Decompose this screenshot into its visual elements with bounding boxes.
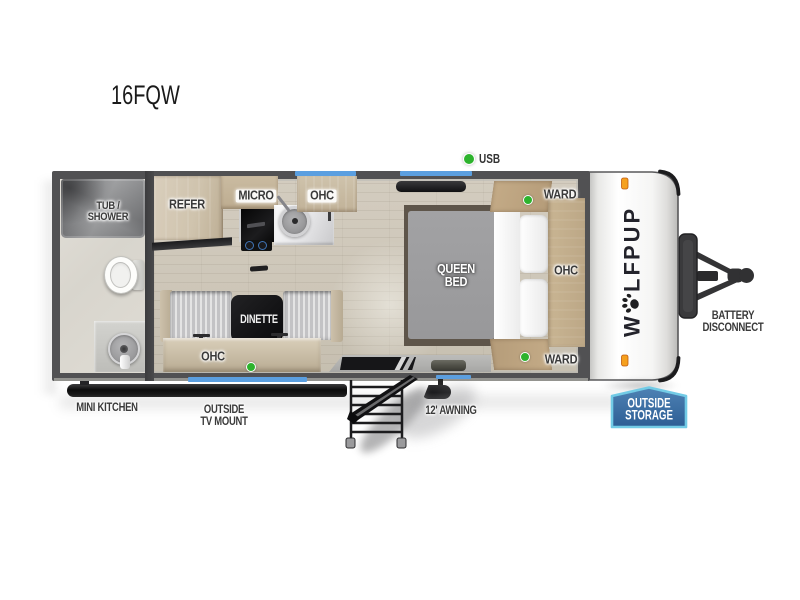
svg-text:PUP: PUP	[620, 206, 645, 260]
svg-text:STORAGE: STORAGE	[625, 408, 673, 423]
svg-text:LF: LF	[620, 259, 645, 292]
svg-text:W: W	[620, 313, 645, 337]
